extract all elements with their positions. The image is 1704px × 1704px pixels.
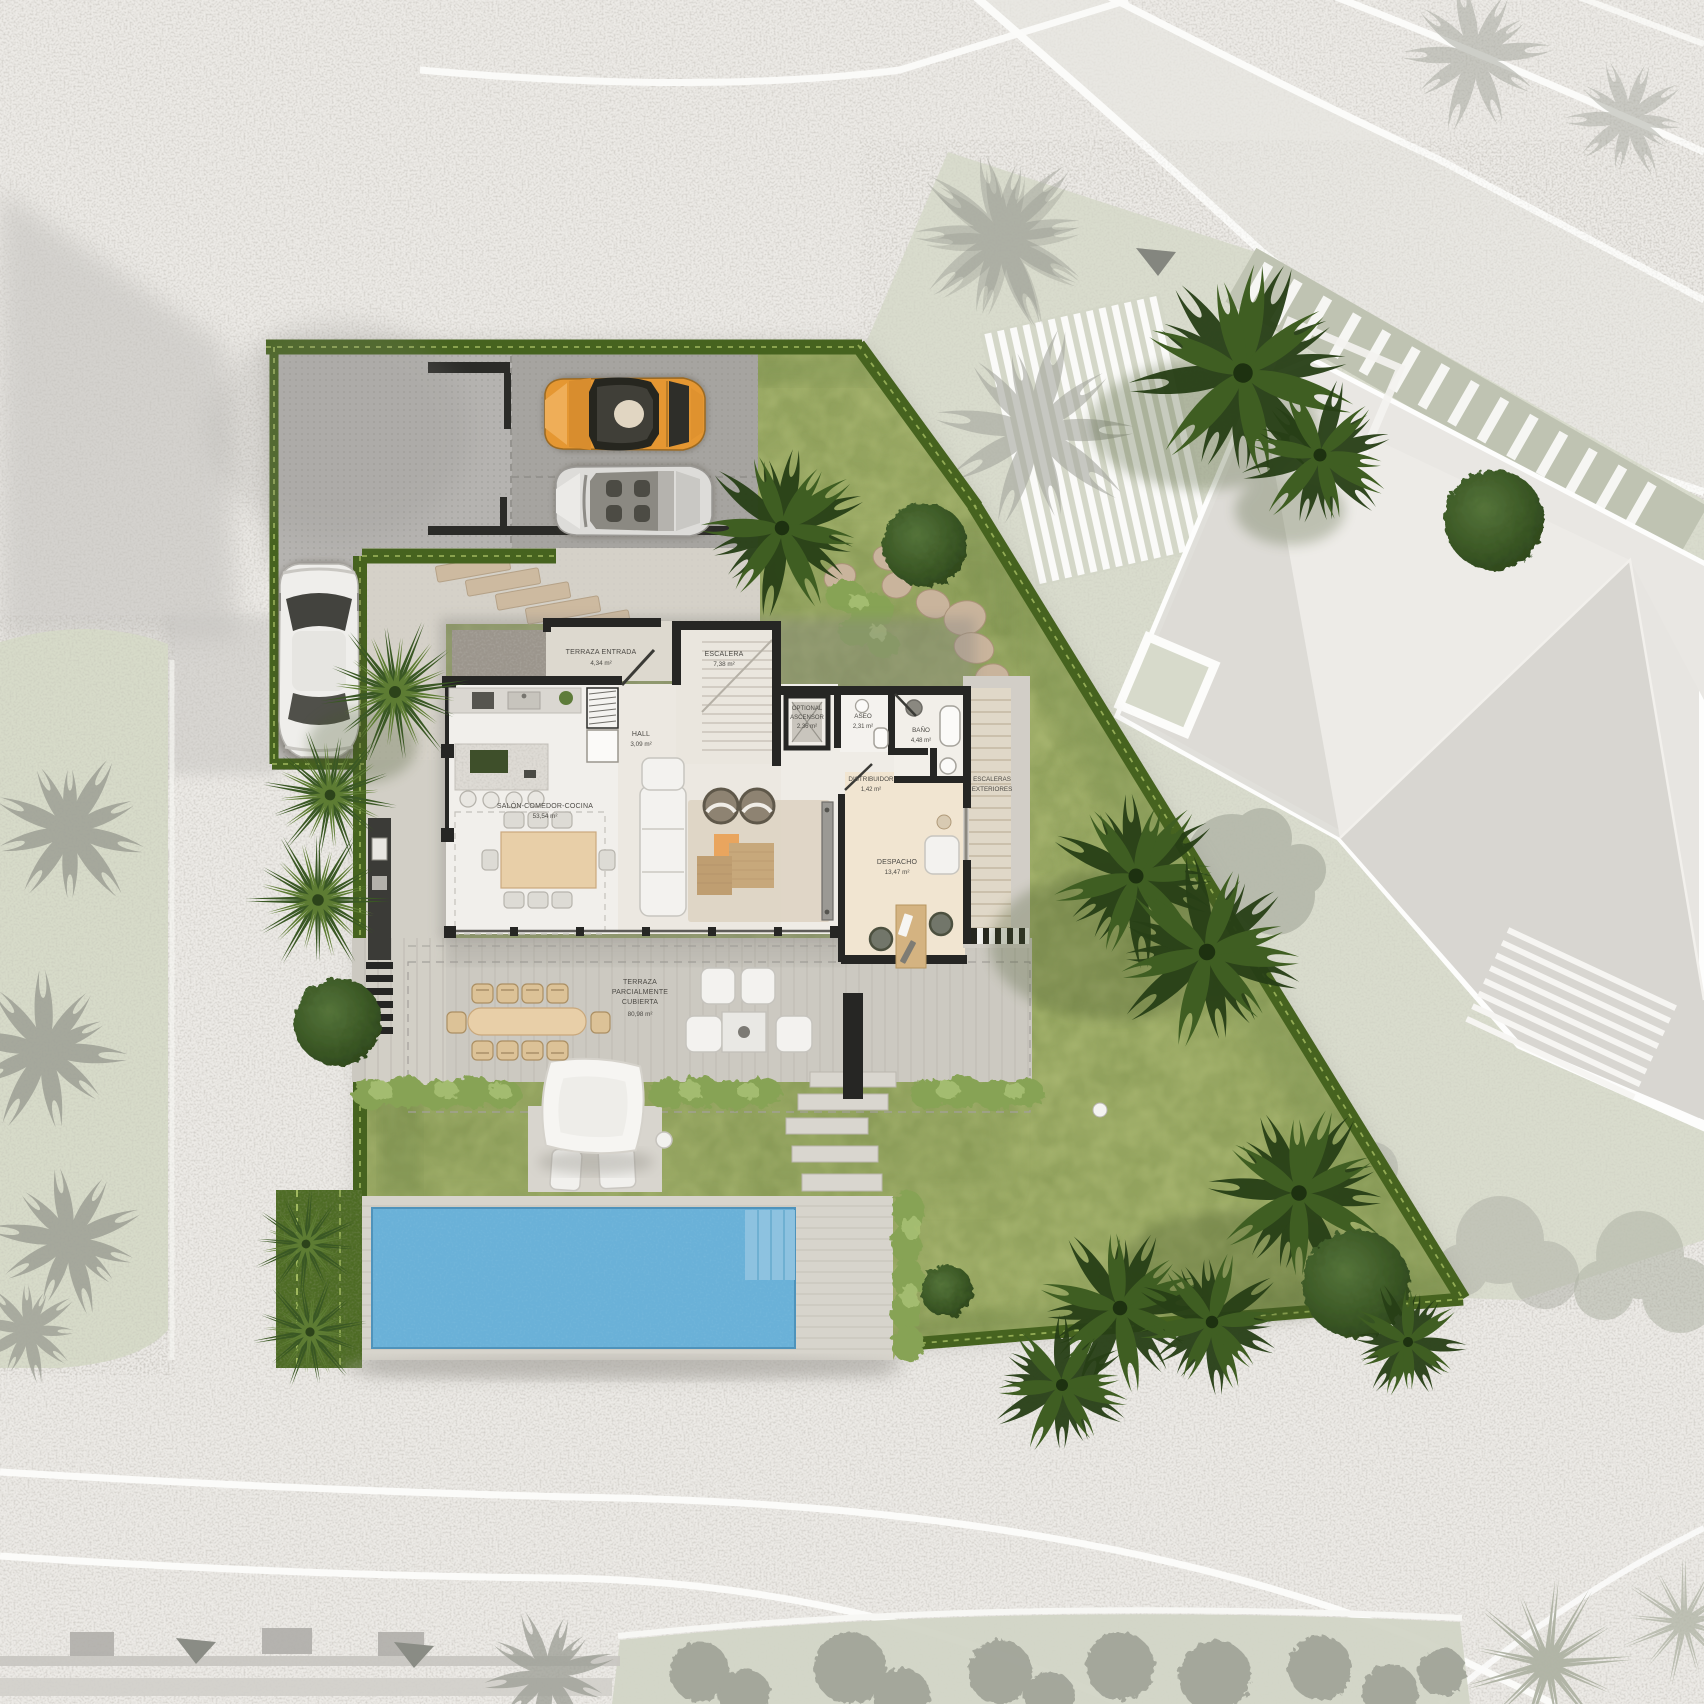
svg-text:ASEO: ASEO [854,713,872,720]
svg-text:TERRAZA: TERRAZA [623,979,657,986]
svg-text:EXTERIORES: EXTERIORES [972,786,1013,793]
svg-text:HALL: HALL [632,731,650,738]
svg-text:DISTRIBUIDOR: DISTRIBUIDOR [848,776,894,783]
svg-text:DESPACHO: DESPACHO [877,859,918,866]
svg-text:PARCIALMENTE: PARCIALMENTE [612,989,668,996]
svg-text:80,98 m²: 80,98 m² [628,1011,653,1018]
svg-text:TERRAZA ENTRADA: TERRAZA ENTRADA [566,649,637,656]
svg-text:ESCALERAS: ESCALERAS [973,776,1011,783]
svg-text:3,09 m²: 3,09 m² [630,741,651,748]
svg-text:OPTIONAL: OPTIONAL [792,706,823,712]
svg-text:4,34 m²: 4,34 m² [590,660,611,667]
svg-text:1,42 m²: 1,42 m² [861,787,881,793]
svg-text:13,47 m²: 13,47 m² [885,869,910,876]
svg-text:4,48 m²: 4,48 m² [911,738,931,744]
svg-text:CUBIERTA: CUBIERTA [622,999,658,1006]
svg-text:ASCENSOR: ASCENSOR [790,715,824,721]
svg-text:SALÓN-COMEDOR-COCINA: SALÓN-COMEDOR-COCINA [497,801,593,810]
svg-text:ESCALERA: ESCALERA [705,651,744,658]
svg-text:BAÑO: BAÑO [912,725,930,734]
svg-text:7,38 m²: 7,38 m² [713,661,734,668]
svg-text:2,31 m²: 2,31 m² [853,724,873,730]
svg-text:2,36 m²: 2,36 m² [797,724,817,730]
svg-text:53,54 m²: 53,54 m² [533,813,558,820]
